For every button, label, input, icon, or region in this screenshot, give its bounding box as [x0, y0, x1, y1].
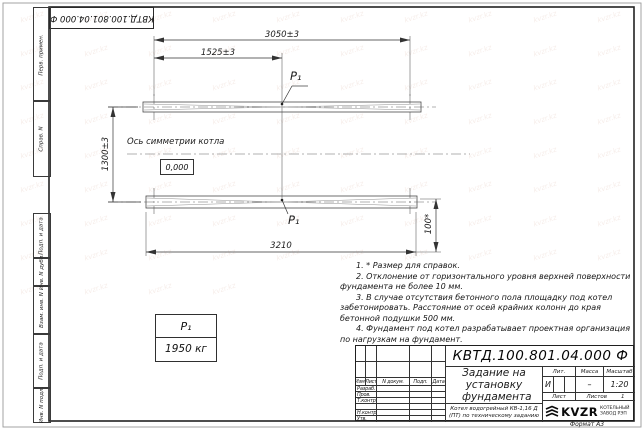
product-name: Котел водогрейный КВ-1,16 Д (ПТ) по техн…	[448, 406, 540, 420]
side-cell-sprav-n: Справ. N	[33, 100, 51, 177]
note-4: 4. Фундамент под котел разрабатывает про…	[340, 324, 634, 345]
side-cell-podp-data-1: Подп. и дата	[33, 213, 51, 259]
sheets-label: Листов	[586, 394, 607, 400]
lit-value: И	[543, 377, 554, 393]
col-podp: Подп.	[410, 378, 432, 386]
sheet-label: Лист	[543, 393, 576, 401]
row-utv: Утв.	[356, 416, 377, 422]
symmetry-axis-label: Ось симметрии котла	[127, 137, 224, 147]
drawing-sheet: kvzr.kzkvzr.kzkvzr.kzkvzr.kzkvzr.kzkvzr.…	[0, 0, 644, 430]
notes-block: 1. * Размер для справок. 2. Отклонение о…	[340, 261, 634, 345]
note-1: 1. * Размер для справок.	[340, 261, 634, 272]
side-cell-podp-data-2: Подп. и дата	[33, 333, 51, 389]
title-doc-number: КВТД.100.801.04.000 Ф	[446, 346, 635, 367]
col-ndocum: N докум.	[377, 378, 410, 386]
dim-3050: 3050±3	[252, 30, 312, 40]
format-label: Формат А3	[552, 421, 622, 428]
side-cell-inv-podl: Инв. N подл.	[33, 387, 51, 423]
kvzr-logo-icon	[545, 405, 559, 418]
level-mark-box: 0,000	[160, 159, 194, 175]
dim-100: 100*	[424, 199, 434, 249]
col-izm: Изм.	[356, 378, 366, 386]
dim-1300: 1300±3	[101, 129, 111, 179]
top-doc-number-box: КВТД.100.801.04.000 Ф	[49, 7, 154, 29]
lit-header: Лит.	[543, 367, 576, 377]
side-cell-inv-dubl: Инв. N дубл.	[33, 257, 51, 287]
side-cell-perv-primen: Перв. примен.	[33, 7, 51, 102]
load-table: Р₁ 1950 кг	[155, 314, 217, 362]
load-point-top-label: Р₁	[290, 69, 302, 83]
mass-header: Масса	[576, 367, 604, 377]
dim-3210: 3210	[251, 241, 311, 251]
company-name-line2: ЗАВОД РЭП	[600, 412, 630, 417]
load-table-value: 1950 кг	[156, 338, 216, 360]
load-leaders	[281, 86, 308, 214]
mass-value: –	[576, 377, 604, 393]
company-logo-text: KVZR	[561, 405, 598, 419]
load-table-name: Р₁	[156, 315, 216, 338]
note-2: 2. Отклонение от горизонтального уровня …	[340, 272, 634, 293]
col-list: Лист	[366, 378, 377, 386]
top-doc-number: КВТД.100.801.04.000 Ф	[50, 13, 154, 23]
scale-header: Масштаб	[604, 367, 635, 377]
sheets-value: 1	[621, 394, 625, 400]
title-block: Изм. Лист N докум. Подп. Дата Разраб. Пр…	[355, 345, 634, 421]
side-cell-vzam-inv: Взам. инв. N	[33, 285, 51, 335]
drawing-title: Задание на установку фундамента	[462, 367, 526, 403]
note-3: 3. В случае отсутствия бетонного пола пл…	[340, 293, 634, 325]
col-data: Дата	[432, 378, 446, 386]
dim-1525: 1525±3	[188, 48, 248, 58]
scale-value: 1:20	[604, 377, 635, 393]
load-point-bottom-label: Р₁	[288, 213, 300, 227]
